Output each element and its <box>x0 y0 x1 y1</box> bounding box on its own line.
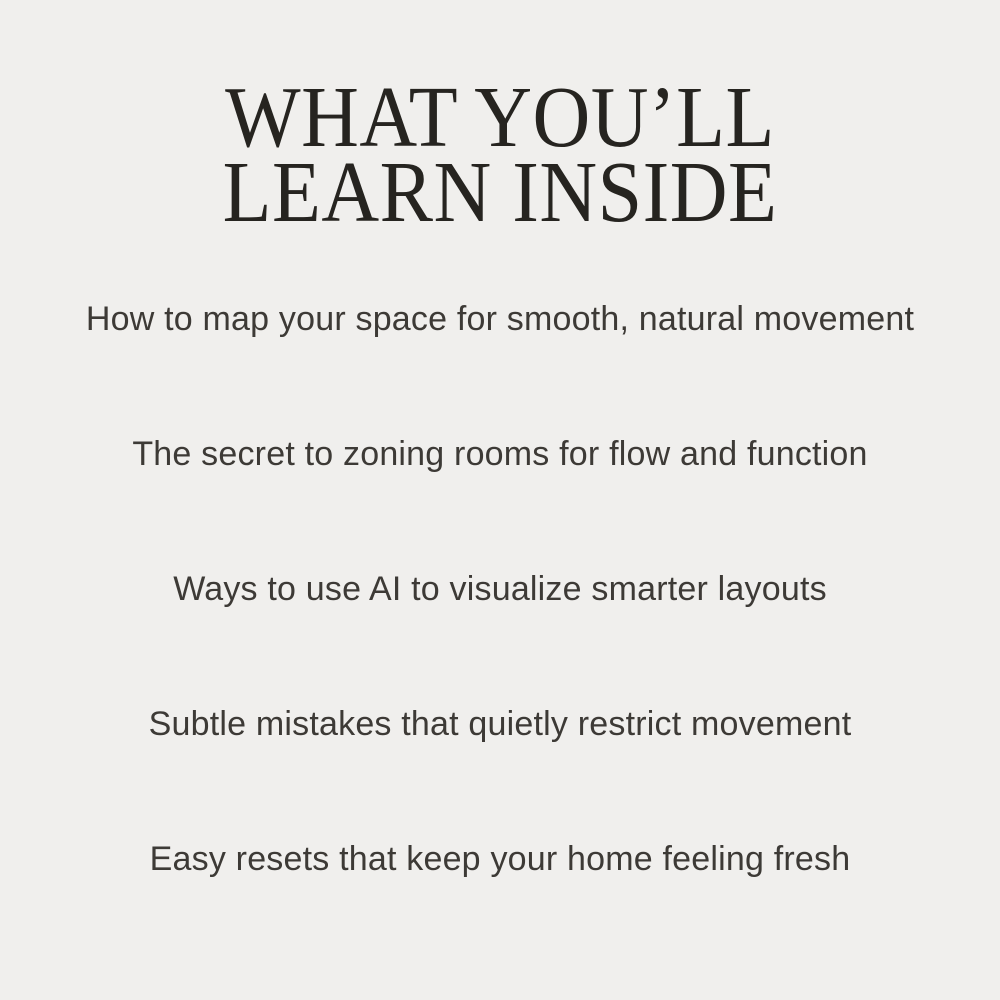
learn-points-list: How to map your space for smooth, natura… <box>0 299 1000 880</box>
learn-point-map-space: How to map your space for smooth, natura… <box>0 299 1000 340</box>
learn-point-zoning-rooms: The secret to zoning rooms for flow and … <box>0 434 1000 475</box>
learn-point-easy-resets: Easy resets that keep your home feeling … <box>0 839 1000 880</box>
page-title: WHAT YOU’LL LEARN INSIDE <box>0 78 1000 228</box>
learn-point-subtle-mistakes: Subtle mistakes that quietly restrict mo… <box>0 704 1000 745</box>
poster-background: WHAT YOU’LL LEARN INSIDE How to map your… <box>0 0 1000 1000</box>
learn-point-ai-layouts: Ways to use AI to visualize smarter layo… <box>0 569 1000 610</box>
page-title-line-2: LEARN INSIDE <box>0 153 1000 234</box>
